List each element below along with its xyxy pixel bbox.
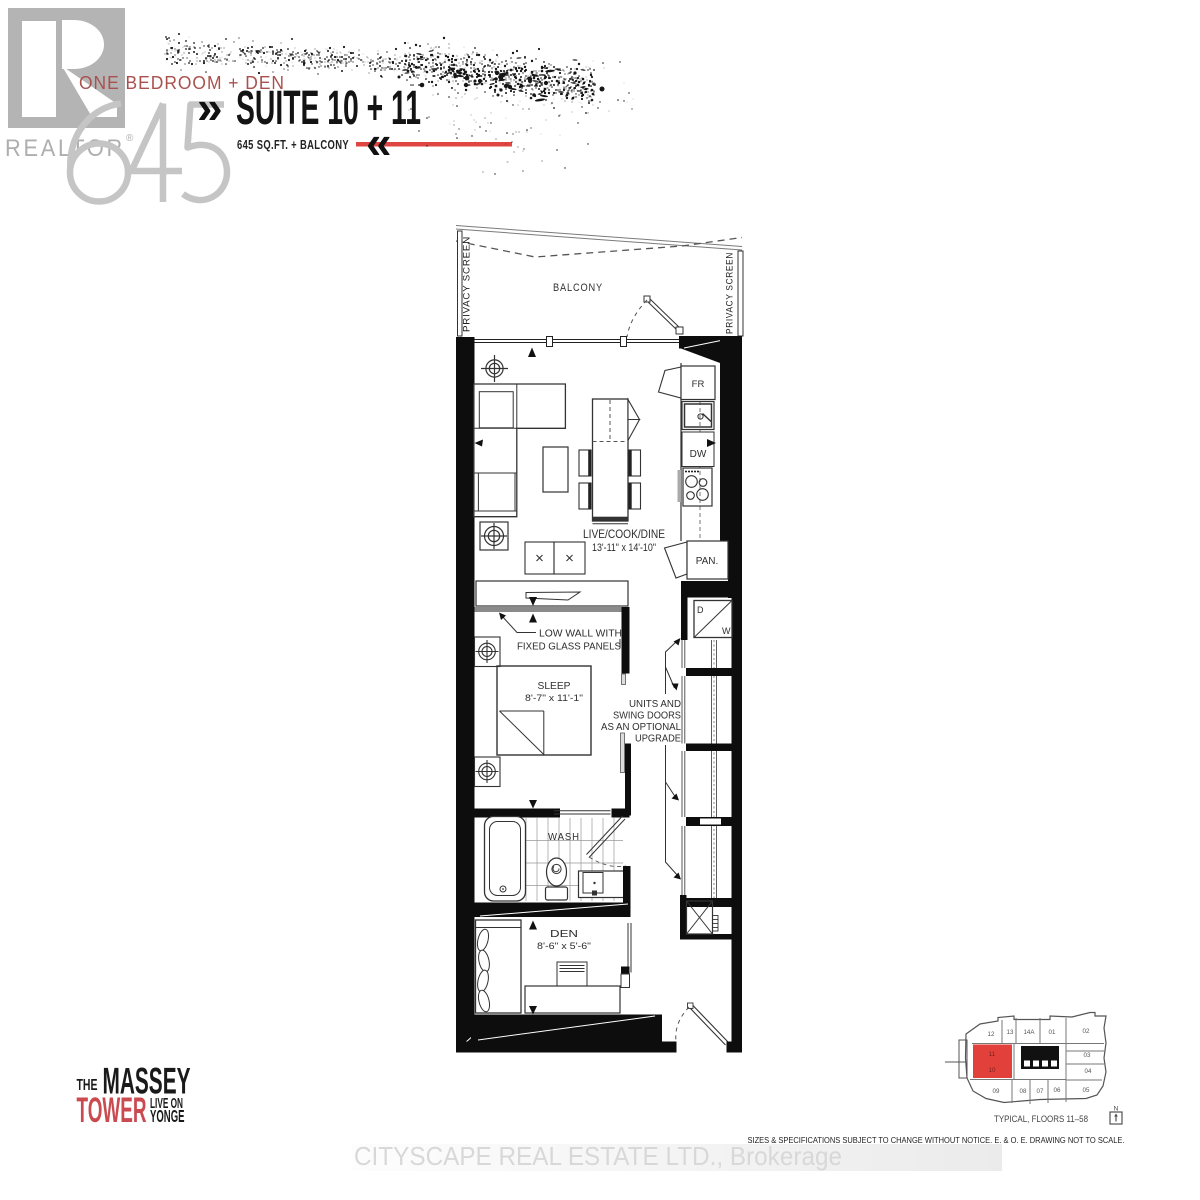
svg-text:14A: 14A <box>1023 1029 1035 1036</box>
svg-text:N: N <box>1114 1106 1119 1113</box>
svg-text:8'-7" x 11'-1": 8'-7" x 11'-1" <box>525 693 583 704</box>
svg-text:REALTOR: REALTOR <box>5 135 125 162</box>
svg-text:SUITE 10 + 11: SUITE 10 + 11 <box>236 82 421 135</box>
svg-text:WASH: WASH <box>548 831 580 843</box>
svg-text:07: 07 <box>1037 1088 1044 1095</box>
svg-text:AS AN OPTIONAL: AS AN OPTIONAL <box>601 722 681 733</box>
svg-text:05: 05 <box>1083 1087 1090 1094</box>
svg-text:D: D <box>697 605 704 615</box>
svg-text:BALCONY: BALCONY <box>553 282 603 294</box>
svg-text:FR: FR <box>692 379 705 390</box>
svg-text:08: 08 <box>1020 1088 1027 1095</box>
svg-text:04: 04 <box>1085 1068 1092 1075</box>
svg-text:PRIVACY SCREEN: PRIVACY SCREEN <box>725 252 736 334</box>
svg-text:TYPICAL, FLOORS 11–58: TYPICAL, FLOORS 11–58 <box>994 1114 1088 1125</box>
svg-text:02: 02 <box>1083 1028 1090 1035</box>
svg-text:11: 11 <box>989 1051 996 1058</box>
svg-text:645 SQ.FT. + BALCONY: 645 SQ.FT. + BALCONY <box>237 137 349 152</box>
svg-text:®: ® <box>126 133 134 144</box>
svg-text:06: 06 <box>1054 1087 1061 1094</box>
svg-text:8'-6" x 5'-6": 8'-6" x 5'-6" <box>537 941 591 952</box>
svg-text:W: W <box>722 626 731 636</box>
svg-text:UNITS AND: UNITS AND <box>629 699 681 710</box>
svg-text:01: 01 <box>1049 1029 1056 1036</box>
svg-text:CITYSCAPE REAL ESTATE LTD., Br: CITYSCAPE REAL ESTATE LTD., Brokerage <box>354 1141 842 1171</box>
svg-text:»: » <box>197 81 223 133</box>
svg-text:LOW WALL WITH: LOW WALL WITH <box>539 629 622 640</box>
svg-text:DEN: DEN <box>550 928 578 940</box>
svg-text:09: 09 <box>993 1088 1000 1095</box>
svg-text:13'-11" x 14'-10": 13'-11" x 14'-10" <box>592 542 656 554</box>
svg-text:12: 12 <box>988 1031 995 1038</box>
svg-text:UPGRADE: UPGRADE <box>635 734 681 745</box>
svg-text:YONGE: YONGE <box>150 1106 185 1126</box>
svg-text:SLEEP: SLEEP <box>538 680 571 692</box>
svg-text:LIVE/COOK/DINE: LIVE/COOK/DINE <box>583 527 665 541</box>
svg-text:FIXED GLASS PANELS: FIXED GLASS PANELS <box>517 642 621 653</box>
svg-text:«: « <box>366 116 392 168</box>
svg-text:03: 03 <box>1084 1052 1091 1059</box>
svg-text:TOWER: TOWER <box>77 1091 147 1130</box>
svg-text:10: 10 <box>989 1067 996 1074</box>
svg-text:DW: DW <box>690 449 707 460</box>
svg-text:PRIVACY SCREEN: PRIVACY SCREEN <box>462 236 473 332</box>
svg-text:13: 13 <box>1007 1029 1014 1036</box>
svg-text:SWING DOORS: SWING DOORS <box>613 711 681 722</box>
svg-text:PAN.: PAN. <box>696 556 719 567</box>
